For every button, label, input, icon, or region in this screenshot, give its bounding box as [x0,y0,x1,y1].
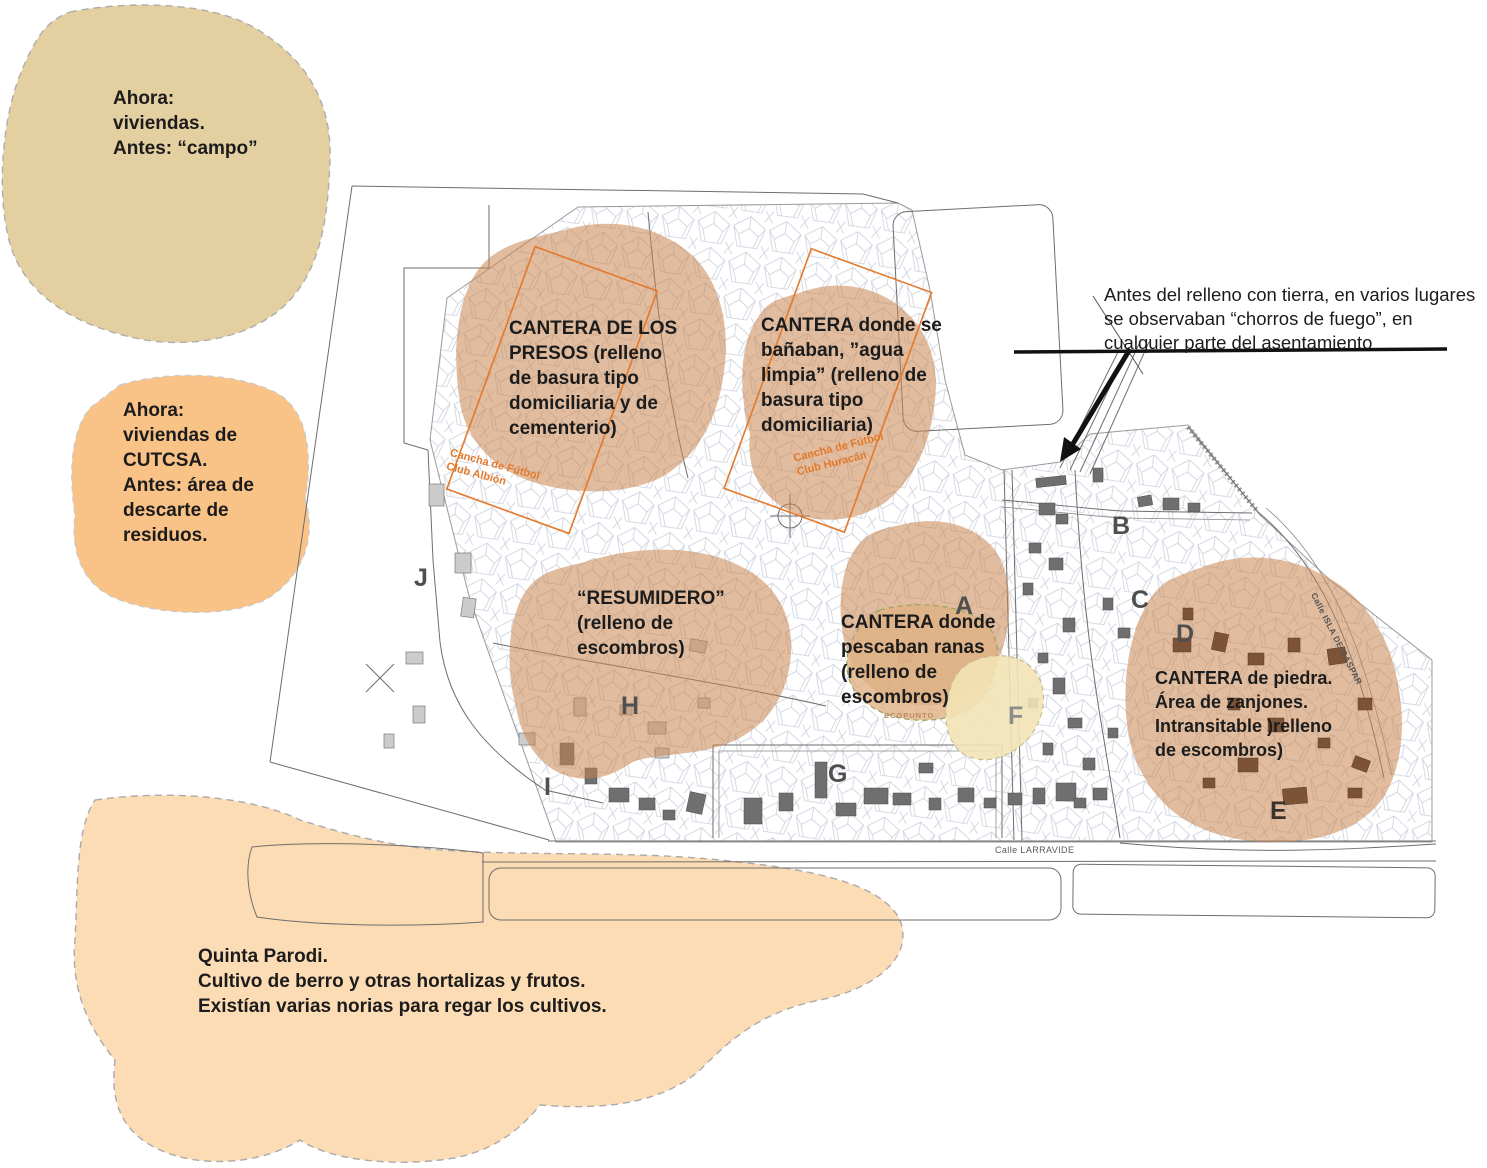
map-letter-j: J [414,564,428,593]
note-chorros-de-fuego: Antes del relleno con tierra, en varios … [1104,283,1475,355]
street-calle-larravide: Calle LARRAVIDE [995,845,1074,855]
label-cantera-banaban: CANTERA donde se bañaban, ”agua limpia” … [761,313,942,438]
map-letter-i: I [544,773,551,802]
note-ahora-viviendas: Ahora: viviendas. Antes: “campo” [113,86,258,161]
map-letter-g: G [828,760,847,789]
label-cantera-ranas: CANTERA donde pescaban ranas (relleno de… [841,610,995,710]
label-cantera-piedra: CANTERA de piedra. Área de zanjones. Int… [1155,666,1332,762]
note-quinta-parodi: Quinta Parodi. Cultivo de berro y otras … [198,944,607,1019]
map-letter-f: F [1008,702,1023,731]
annotated-site-map: Ahora: viviendas. Antes: “campo” Ahora: … [0,0,1487,1168]
label-cantera-presos: CANTERA DE LOS PRESOS (relleno de basura… [509,316,677,441]
map-letter-d: D [1176,620,1194,649]
map-letter-a: A [955,592,973,621]
map-letter-e: E [1270,797,1287,826]
label-resumidero: “RESUMIDERO” (relleno de escombros) [577,586,725,661]
map-letter-h: H [621,692,639,721]
map-letter-b: B [1112,512,1130,541]
blob-ahora-viviendas [2,5,330,343]
map-letter-c: C [1131,586,1149,615]
label-ecopunto: ECOPUNTO [884,711,934,720]
note-cutcsa: Ahora: viviendas de CUTCSA. Antes: área … [123,398,254,548]
